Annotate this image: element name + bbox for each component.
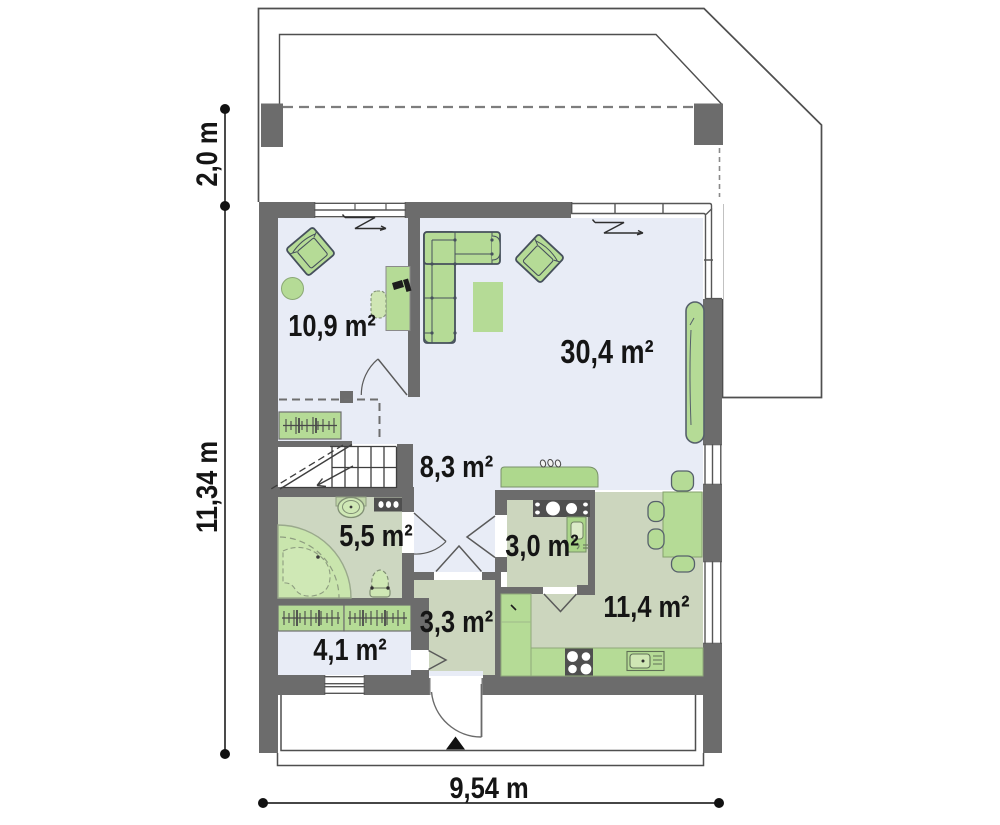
svg-text:4,1 m²: 4,1 m² (313, 633, 386, 668)
svg-text:10,9 m²: 10,9 m² (288, 309, 376, 344)
svg-text:5,5 m²: 5,5 m² (339, 519, 412, 554)
svg-text:30,4 m²: 30,4 m² (560, 335, 653, 371)
svg-text:9,54 m: 9,54 m (449, 771, 528, 804)
svg-text:3,3 m²: 3,3 m² (420, 605, 493, 640)
svg-text:11,34 m: 11,34 m (190, 441, 223, 533)
svg-text:8,3 m²: 8,3 m² (420, 450, 493, 485)
svg-text:2,0 m: 2,0 m (190, 121, 223, 186)
svg-text:3,0 m²: 3,0 m² (505, 529, 578, 564)
svg-text:11,4 m²: 11,4 m² (603, 590, 689, 625)
